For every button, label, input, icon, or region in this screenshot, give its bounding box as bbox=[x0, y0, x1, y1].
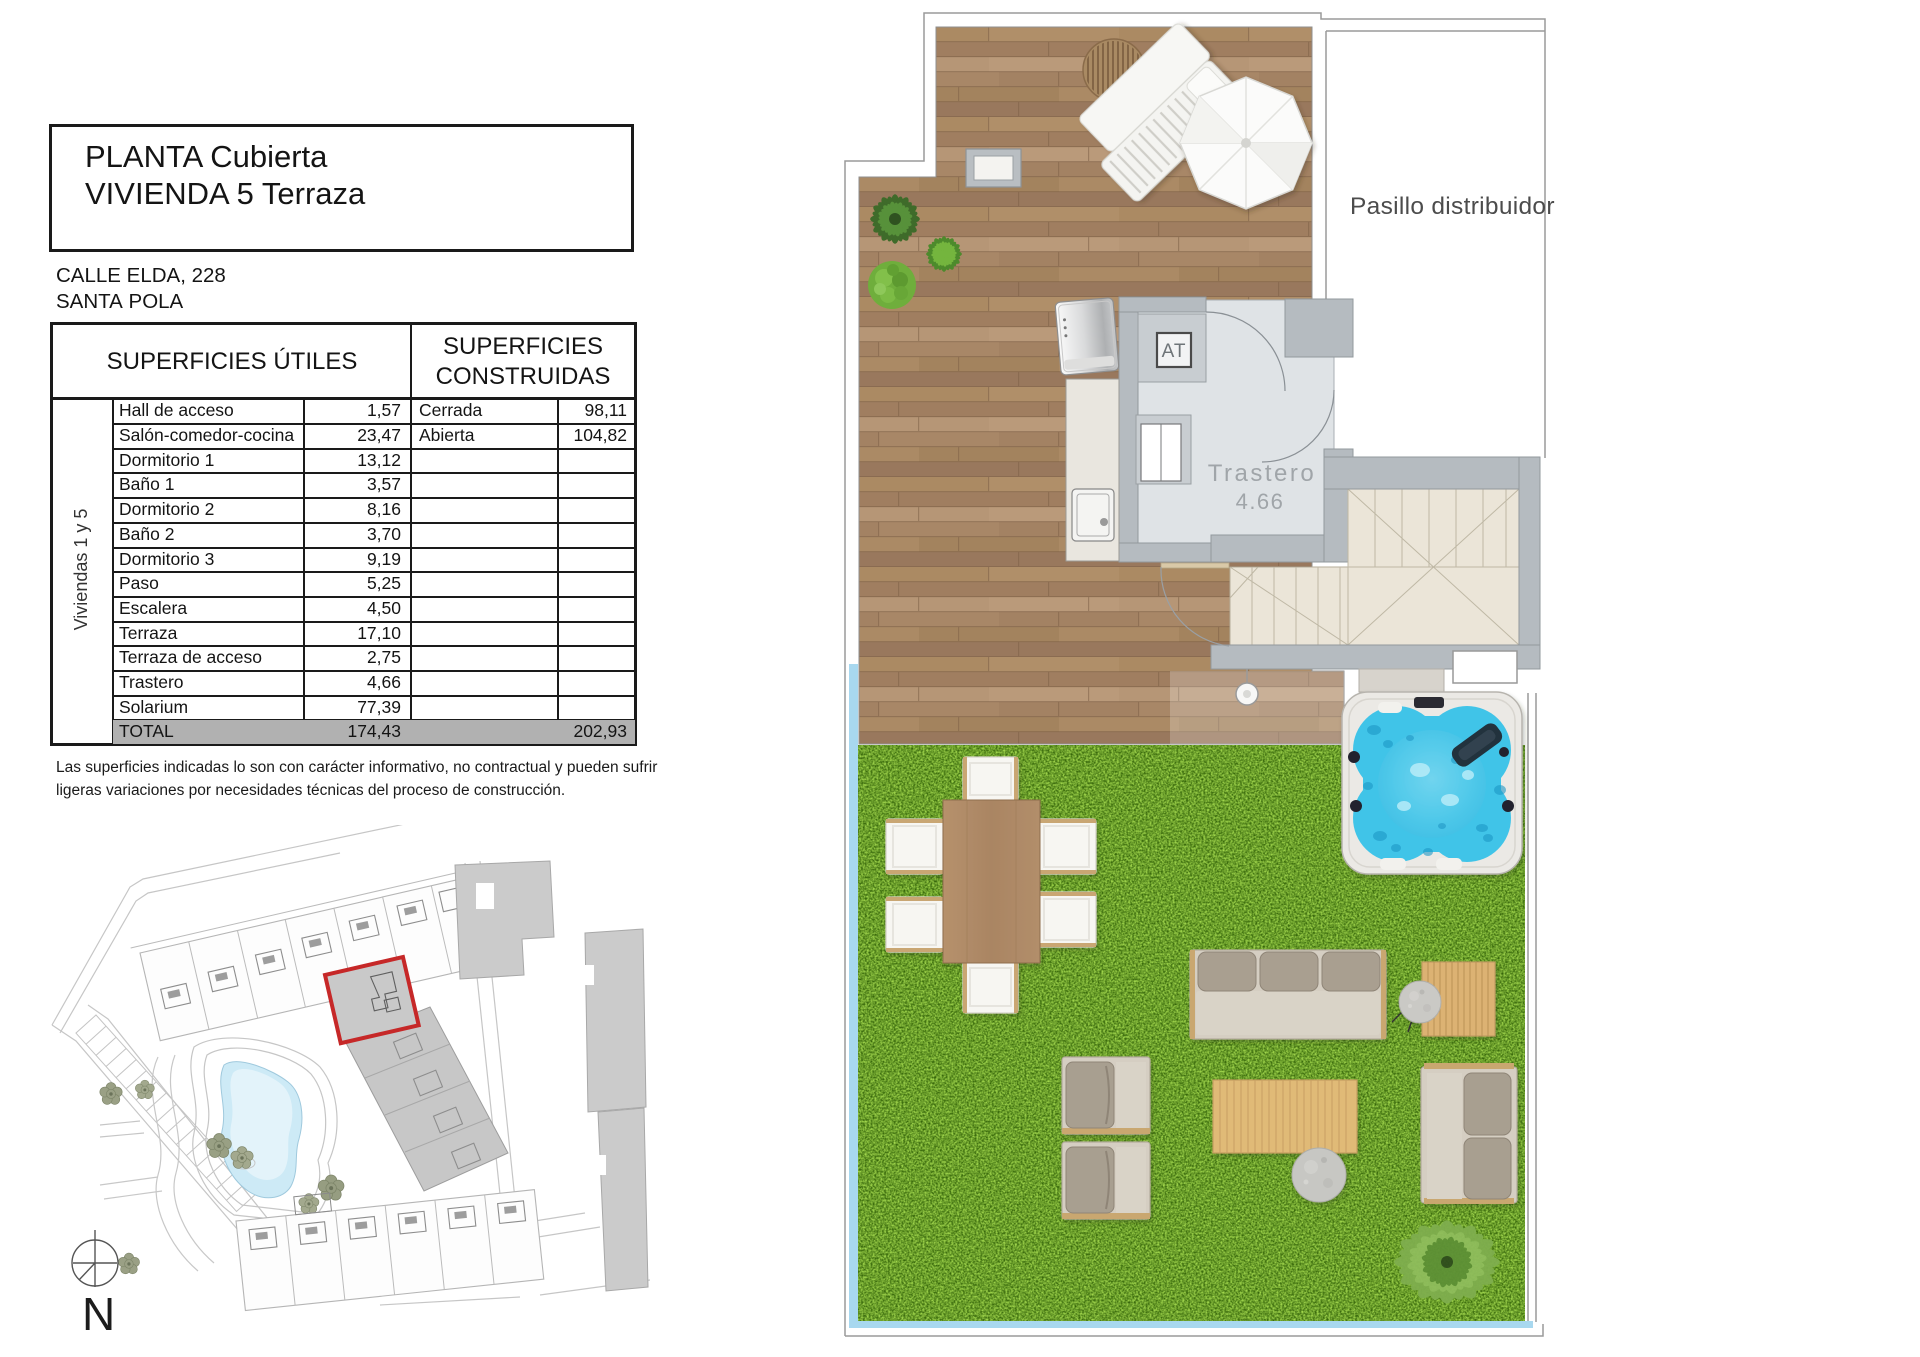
svg-text:AT: AT bbox=[1162, 341, 1187, 362]
svg-text:Pasillo distribuidor: Pasillo distribuidor bbox=[1350, 193, 1555, 220]
svg-text:4.66: 4.66 bbox=[1236, 489, 1285, 514]
svg-text:N: N bbox=[82, 1288, 115, 1340]
svg-text:Trastero: Trastero bbox=[1208, 460, 1316, 487]
